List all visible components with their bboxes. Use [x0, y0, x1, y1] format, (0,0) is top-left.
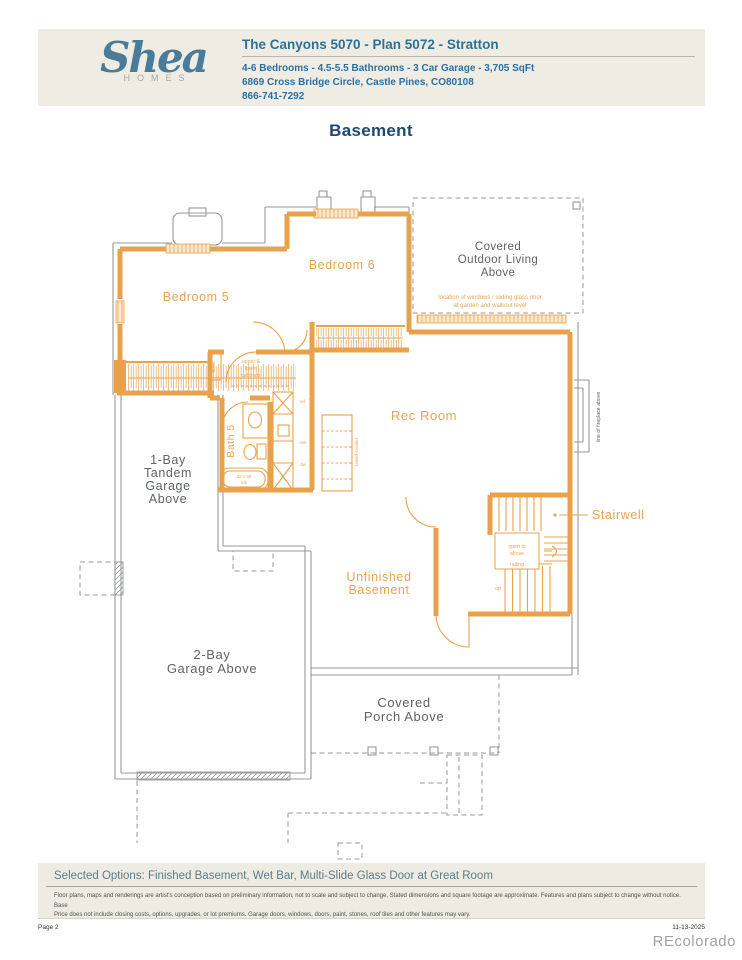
- header-info: The Canyons 5070 - Plan 5072 - Stratton …: [242, 37, 695, 104]
- window-well-hatch: [115, 562, 123, 595]
- label-covered-outdoor-2: Outdoor Living: [458, 254, 538, 266]
- label-garage1-4: Above: [149, 492, 187, 506]
- label-window-note-2: at garden and walkout level: [453, 303, 526, 309]
- label-garage2-2: Garage Above: [167, 661, 257, 676]
- logo-sub-text: HOMES: [66, 73, 241, 83]
- date-stamp: 11-13-2025: [672, 924, 705, 931]
- label-covered-outdoor-3: Above: [481, 267, 516, 279]
- label-cabinets-3: cabinets: [241, 373, 261, 379]
- stairs: [495, 493, 568, 612]
- disclaimer-line-2: Price does not include closing costs, op…: [54, 912, 470, 918]
- window-bed5-top: [166, 244, 210, 253]
- disclaimer-line-1: Floor plans, maps and renderings are art…: [54, 893, 681, 909]
- porch-post: [368, 747, 376, 755]
- floorplan-drawing: Bedroom 5 Bedroom 6 Covered Outdoor Livi…: [36, 150, 706, 865]
- label-cabinets-1: upper &: [242, 359, 261, 365]
- toilet: [244, 445, 256, 460]
- window-row-walkout: [417, 315, 566, 323]
- plan-specs: 4-6 Bedrooms - 4.5-5.5 Bathrooms - 3 Car…: [242, 62, 695, 76]
- plan-address: 6869 Cross Bridge Circle, Castle Pines, …: [242, 76, 695, 90]
- disclaimer: Floor plans, maps and renderings are art…: [38, 887, 705, 921]
- label-open-above-1: open to: [508, 544, 525, 550]
- label-garage1-3: Garage: [145, 479, 190, 493]
- crawl-access: [233, 551, 273, 571]
- label-bedroom5: Bedroom 5: [163, 290, 230, 304]
- label-counter-note: raised counter: [354, 437, 359, 466]
- selected-options: Selected Options: Finished Basement, Wet…: [38, 863, 705, 886]
- header-band: Shea HOMES The Canyons 5070 - Plan 5072 …: [38, 29, 705, 106]
- label-covered-outdoor-1: Covered: [475, 241, 521, 253]
- window-bed5-left: [116, 301, 124, 323]
- sink: [249, 412, 262, 428]
- plan-name-title: The Canyons 5070 - Plan 5072 - Stratton: [242, 37, 695, 57]
- label-unfinished-2: Basement: [348, 583, 409, 597]
- window-well: [80, 562, 115, 595]
- label-tub-2: tub: [241, 480, 248, 485]
- label-snk: snk: [299, 440, 307, 445]
- page-meta: Page 2 11-13-2025: [38, 924, 705, 931]
- label-up: up: [495, 586, 501, 592]
- plan-phone: 866-741-7292: [242, 90, 695, 104]
- label-mech: mech: [211, 361, 216, 373]
- porch-post: [430, 747, 438, 755]
- label-bath5: Bath 5: [225, 424, 237, 457]
- fireplace-outline: [574, 380, 589, 452]
- label-unfinished-1: Unfinished: [346, 570, 411, 584]
- label-cabinets-2: lower: [245, 366, 258, 372]
- label-rec-room: Rec Room: [391, 408, 457, 423]
- counter: [322, 415, 352, 491]
- recolorado-watermark: REcolorado: [653, 933, 736, 950]
- label-window-note-1: location of windows / sliding glass door: [438, 295, 541, 301]
- garage-door-hatch: [137, 772, 290, 780]
- label-porch-2: Porch Above: [364, 709, 444, 724]
- label-fireplace-line: line of fireplace above: [596, 392, 602, 443]
- label-ref: ref.: [300, 399, 307, 404]
- page-number: Page 2: [38, 924, 59, 931]
- walkway: [338, 843, 362, 859]
- footer-band: Selected Options: Finished Basement, Wet…: [38, 863, 705, 919]
- label-garage1-2: Tandem: [144, 466, 192, 480]
- bay-window-bed5: [173, 213, 222, 245]
- label-open-above-2: above: [510, 551, 524, 557]
- label-bedroom6: Bedroom 6: [309, 258, 376, 272]
- label-garage1-1: 1-Bay: [150, 453, 186, 467]
- label-porch-1: Covered: [377, 695, 430, 710]
- vanity: [243, 404, 268, 438]
- label-dw: dw: [300, 462, 307, 467]
- porch-post: [490, 747, 498, 755]
- brochure-page: Shea HOMES The Canyons 5070 - Plan 5072 …: [0, 0, 742, 960]
- label-tub-1: 32 x 60: [237, 474, 252, 479]
- floor-title: Basement: [0, 121, 742, 141]
- label-garage2-1: 2-Bay: [194, 647, 231, 662]
- window-bed6-top: [314, 209, 358, 218]
- label-stairwell: Stairwell: [592, 508, 645, 522]
- label-railing: railing: [510, 562, 524, 568]
- porch-steps: [447, 755, 482, 815]
- shea-homes-logo: Shea HOMES: [66, 35, 241, 83]
